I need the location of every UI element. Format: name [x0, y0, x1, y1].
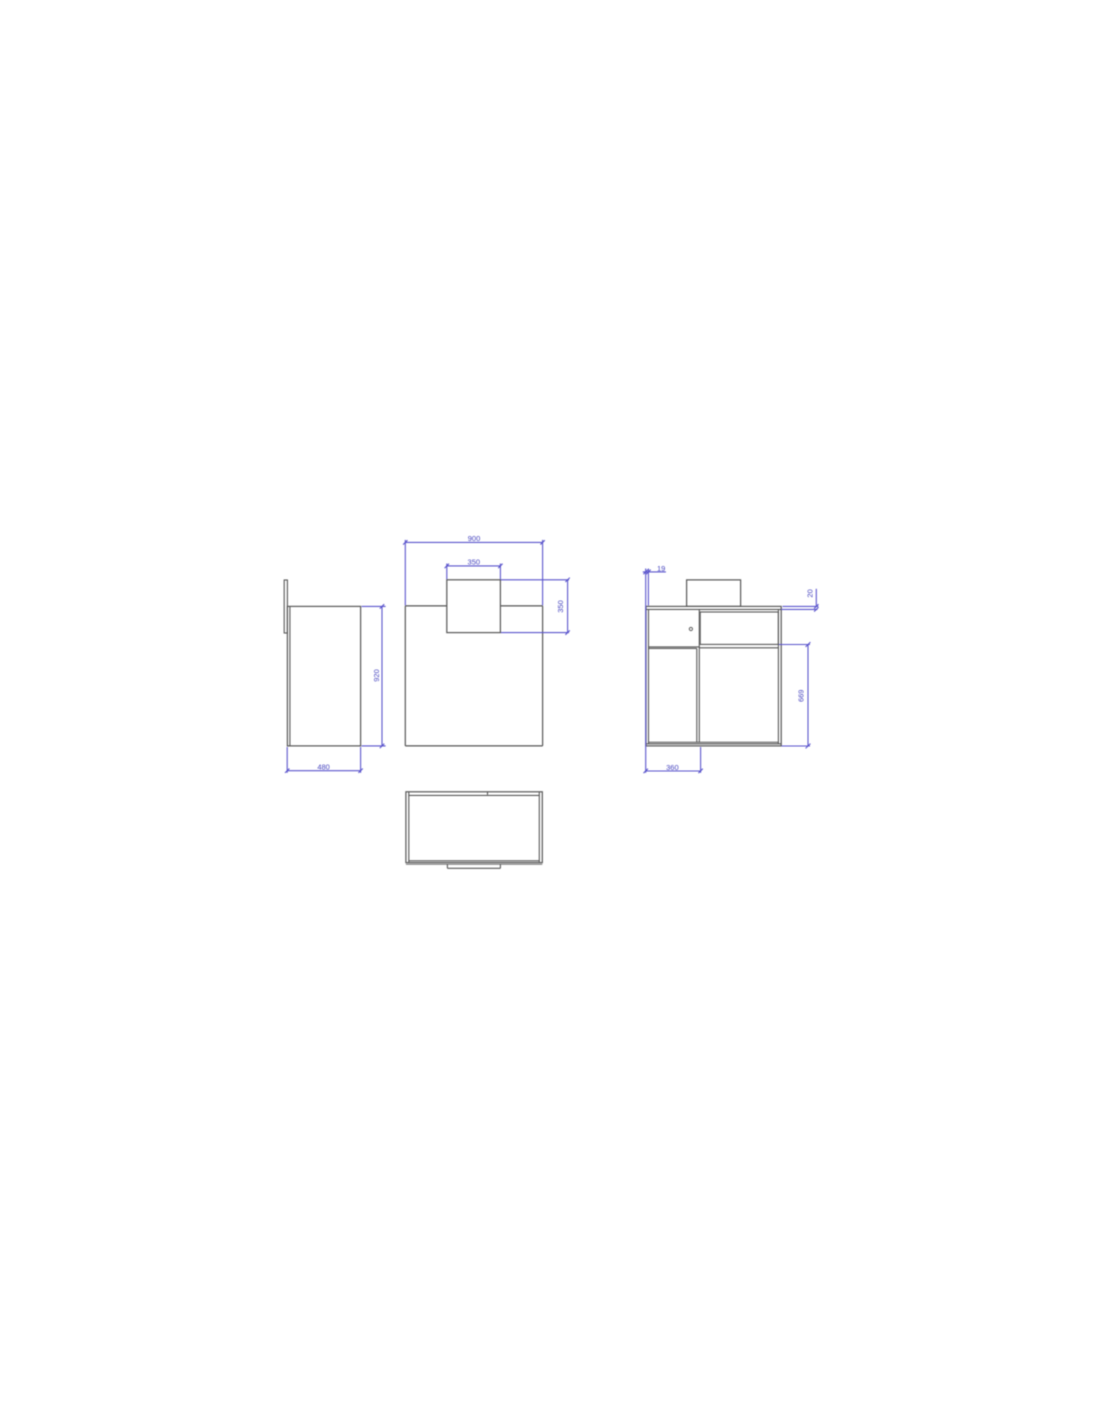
- svg-text:19: 19: [657, 564, 665, 573]
- svg-text:20: 20: [806, 589, 815, 597]
- svg-text:350: 350: [468, 557, 481, 566]
- svg-text:669: 669: [796, 690, 805, 703]
- svg-text:900: 900: [468, 534, 481, 543]
- svg-text:920: 920: [372, 669, 381, 682]
- svg-text:480: 480: [317, 763, 330, 772]
- svg-text:350: 350: [556, 600, 565, 613]
- svg-text:360: 360: [666, 763, 679, 772]
